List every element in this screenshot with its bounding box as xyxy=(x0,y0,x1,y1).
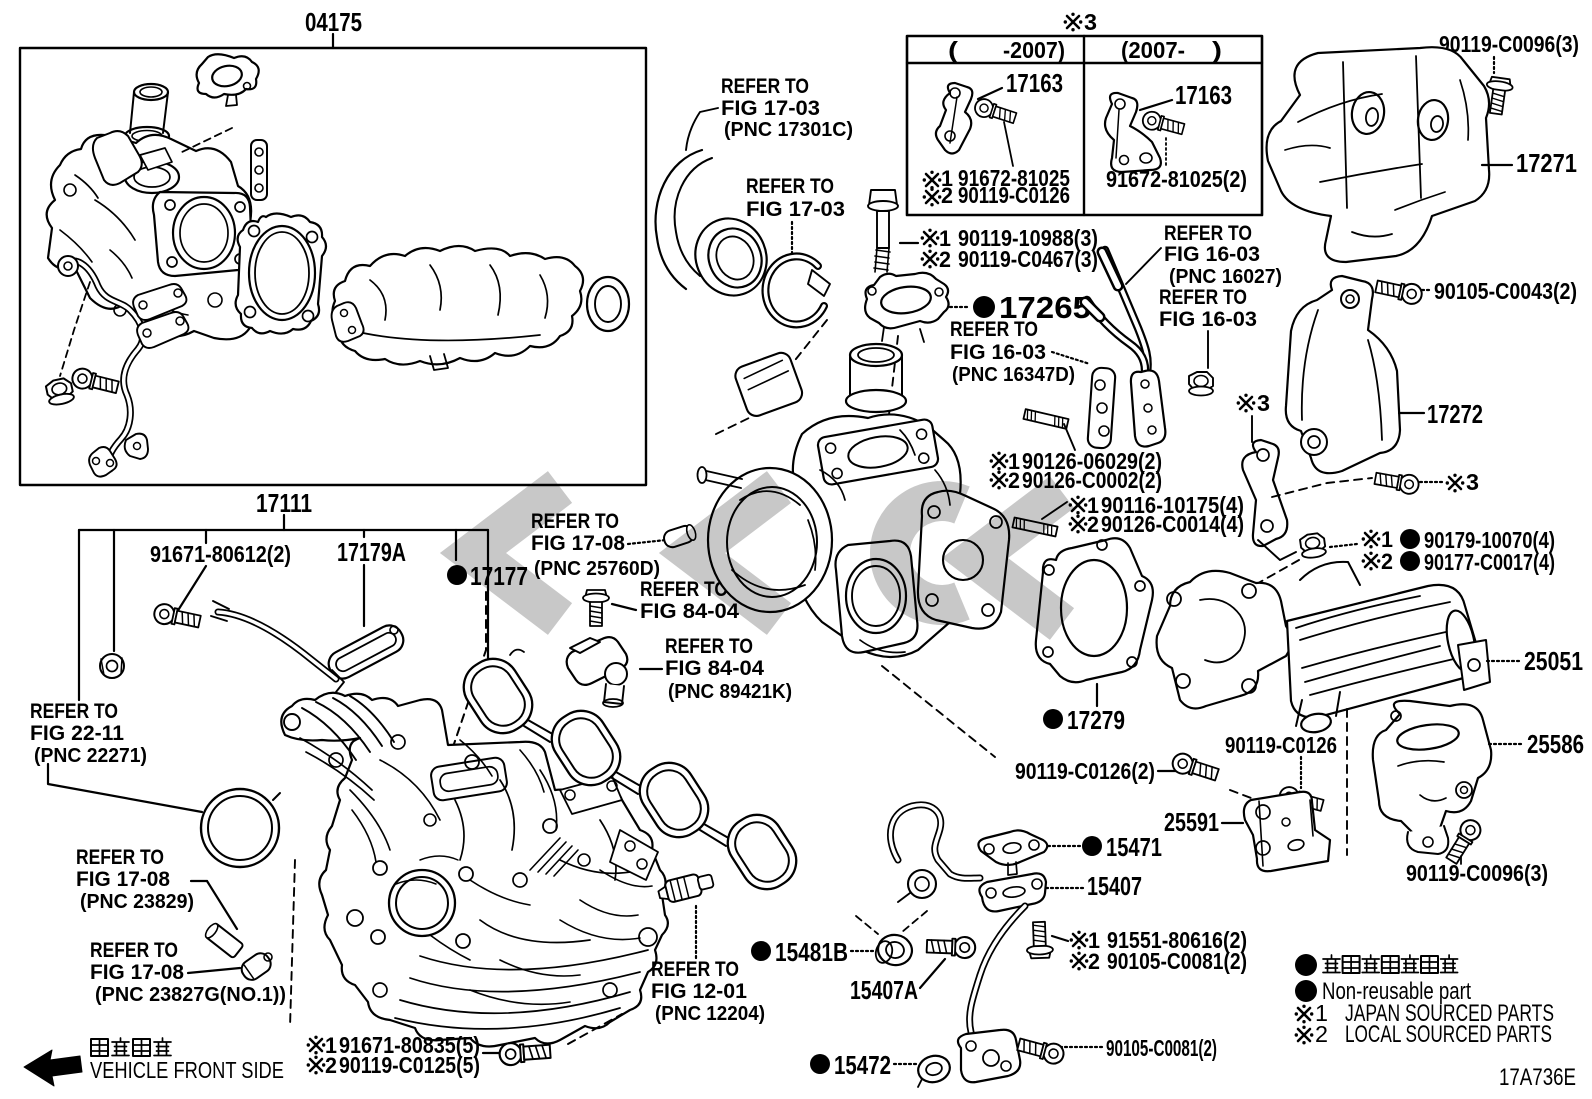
svg-text:17279: 17279 xyxy=(1067,705,1125,735)
svg-text:REFER TO: REFER TO xyxy=(651,958,739,981)
svg-text:REFER TO: REFER TO xyxy=(30,700,118,723)
svg-text:FIG 22-11: FIG 22-11 xyxy=(30,722,124,745)
svg-text:3: 3 xyxy=(1257,390,1270,416)
svg-text:91672-81025(2): 91672-81025(2) xyxy=(1106,166,1247,192)
svg-text:2: 2 xyxy=(1315,1021,1328,1047)
svg-text:90119-C0467(3): 90119-C0467(3) xyxy=(958,246,1098,272)
svg-text:17163: 17163 xyxy=(1175,80,1232,110)
svg-text:25586: 25586 xyxy=(1527,729,1584,759)
svg-text:2: 2 xyxy=(941,183,953,208)
svg-text:REFER TO: REFER TO xyxy=(950,318,1038,341)
svg-text:15407: 15407 xyxy=(1087,871,1142,901)
svg-text:17272: 17272 xyxy=(1427,399,1483,429)
svg-text:FIG 16-03: FIG 16-03 xyxy=(1159,308,1257,331)
svg-text:90119-C0125(5): 90119-C0125(5) xyxy=(339,1052,480,1078)
svg-text:17271: 17271 xyxy=(1516,148,1577,178)
svg-text:REFER TO: REFER TO xyxy=(721,75,809,98)
svg-text:(PNC 12204): (PNC 12204) xyxy=(655,1003,765,1025)
svg-text:90126-C0014(4): 90126-C0014(4) xyxy=(1101,511,1244,537)
svg-text:(PNC 23829): (PNC 23829) xyxy=(80,891,194,913)
svg-text:(PNC 17301C): (PNC 17301C) xyxy=(724,119,853,141)
svg-text:(: ( xyxy=(948,37,958,63)
svg-text:17163: 17163 xyxy=(1006,68,1063,98)
svg-text:FIG 84-04: FIG 84-04 xyxy=(640,600,739,623)
svg-text:): ) xyxy=(1212,37,1222,63)
svg-text:2: 2 xyxy=(1087,512,1099,537)
svg-text:15481B: 15481B xyxy=(775,937,848,967)
svg-text:LOCAL SOURCED PARTS: LOCAL SOURCED PARTS xyxy=(1345,1021,1552,1048)
svg-text:90119-C0126(2): 90119-C0126(2) xyxy=(1015,758,1155,784)
svg-text:(PNC 16347D): (PNC 16347D) xyxy=(952,364,1075,386)
svg-text:25591: 25591 xyxy=(1164,807,1219,837)
svg-text:-2007): -2007) xyxy=(1003,37,1065,63)
svg-text:3: 3 xyxy=(1466,469,1479,495)
svg-text:FIG 17-03: FIG 17-03 xyxy=(721,97,820,120)
svg-text:FIG 17-08: FIG 17-08 xyxy=(531,532,625,555)
svg-text:REFER TO: REFER TO xyxy=(90,939,178,962)
svg-text:17179A: 17179A xyxy=(337,537,406,567)
svg-text:25051: 25051 xyxy=(1524,646,1583,676)
svg-text:(PNC 22271): (PNC 22271) xyxy=(34,745,147,767)
svg-text:04175: 04175 xyxy=(305,7,362,37)
svg-text:(PNC 89421K): (PNC 89421K) xyxy=(668,681,792,703)
svg-text:17111: 17111 xyxy=(256,488,312,518)
svg-text:90105-C0043(2): 90105-C0043(2) xyxy=(1434,278,1577,304)
svg-text:15407A: 15407A xyxy=(850,975,918,1005)
svg-text:90119-C0096(3): 90119-C0096(3) xyxy=(1406,860,1548,886)
svg-text:(PNC 25760D): (PNC 25760D) xyxy=(534,558,660,580)
svg-text:90119-C0126: 90119-C0126 xyxy=(958,182,1070,208)
svg-text:3: 3 xyxy=(1084,9,1097,35)
svg-text:2: 2 xyxy=(1381,549,1393,574)
svg-text:2: 2 xyxy=(939,247,951,272)
svg-text:17A736E: 17A736E xyxy=(1499,1064,1576,1091)
svg-text:90105-C0081(2): 90105-C0081(2) xyxy=(1107,948,1247,974)
svg-text:90105-C0081(2): 90105-C0081(2) xyxy=(1106,1035,1217,1061)
svg-text:2: 2 xyxy=(1008,468,1020,493)
svg-text:2: 2 xyxy=(1088,949,1100,974)
svg-text:FIG 84-04: FIG 84-04 xyxy=(665,657,764,680)
svg-text:FIG 12-01: FIG 12-01 xyxy=(651,980,747,1003)
svg-text:REFER TO: REFER TO xyxy=(76,846,164,869)
svg-text:(PNC 23827G(NO.1)): (PNC 23827G(NO.1)) xyxy=(95,984,286,1006)
svg-text:REFER TO: REFER TO xyxy=(1159,286,1247,309)
svg-text:15472: 15472 xyxy=(834,1050,891,1080)
svg-text:FIG 17-08: FIG 17-08 xyxy=(90,961,184,984)
svg-text:90177-C0017(4): 90177-C0017(4) xyxy=(1424,549,1555,575)
svg-text:90119-C0096(3): 90119-C0096(3) xyxy=(1439,31,1579,57)
svg-text:91671-80612(2): 91671-80612(2) xyxy=(150,541,291,567)
svg-text:REFER TO: REFER TO xyxy=(665,635,753,658)
svg-text:REFER TO: REFER TO xyxy=(746,175,834,198)
svg-text:FIG 17-03: FIG 17-03 xyxy=(746,198,845,221)
svg-text:(PNC 16027): (PNC 16027) xyxy=(1169,266,1282,288)
svg-text:15471: 15471 xyxy=(1106,832,1162,862)
svg-text:FIG 17-08: FIG 17-08 xyxy=(76,868,170,891)
svg-text:FIG 16-03: FIG 16-03 xyxy=(950,341,1046,364)
svg-text:VEHICLE FRONT SIDE: VEHICLE FRONT SIDE xyxy=(90,1057,284,1083)
svg-text:REFER TO: REFER TO xyxy=(1164,222,1252,245)
svg-text:90119-C0126: 90119-C0126 xyxy=(1225,732,1337,758)
svg-text:FIG 16-03: FIG 16-03 xyxy=(1164,243,1260,266)
svg-text:2: 2 xyxy=(325,1053,337,1078)
svg-text:(2007-: (2007- xyxy=(1121,37,1185,63)
